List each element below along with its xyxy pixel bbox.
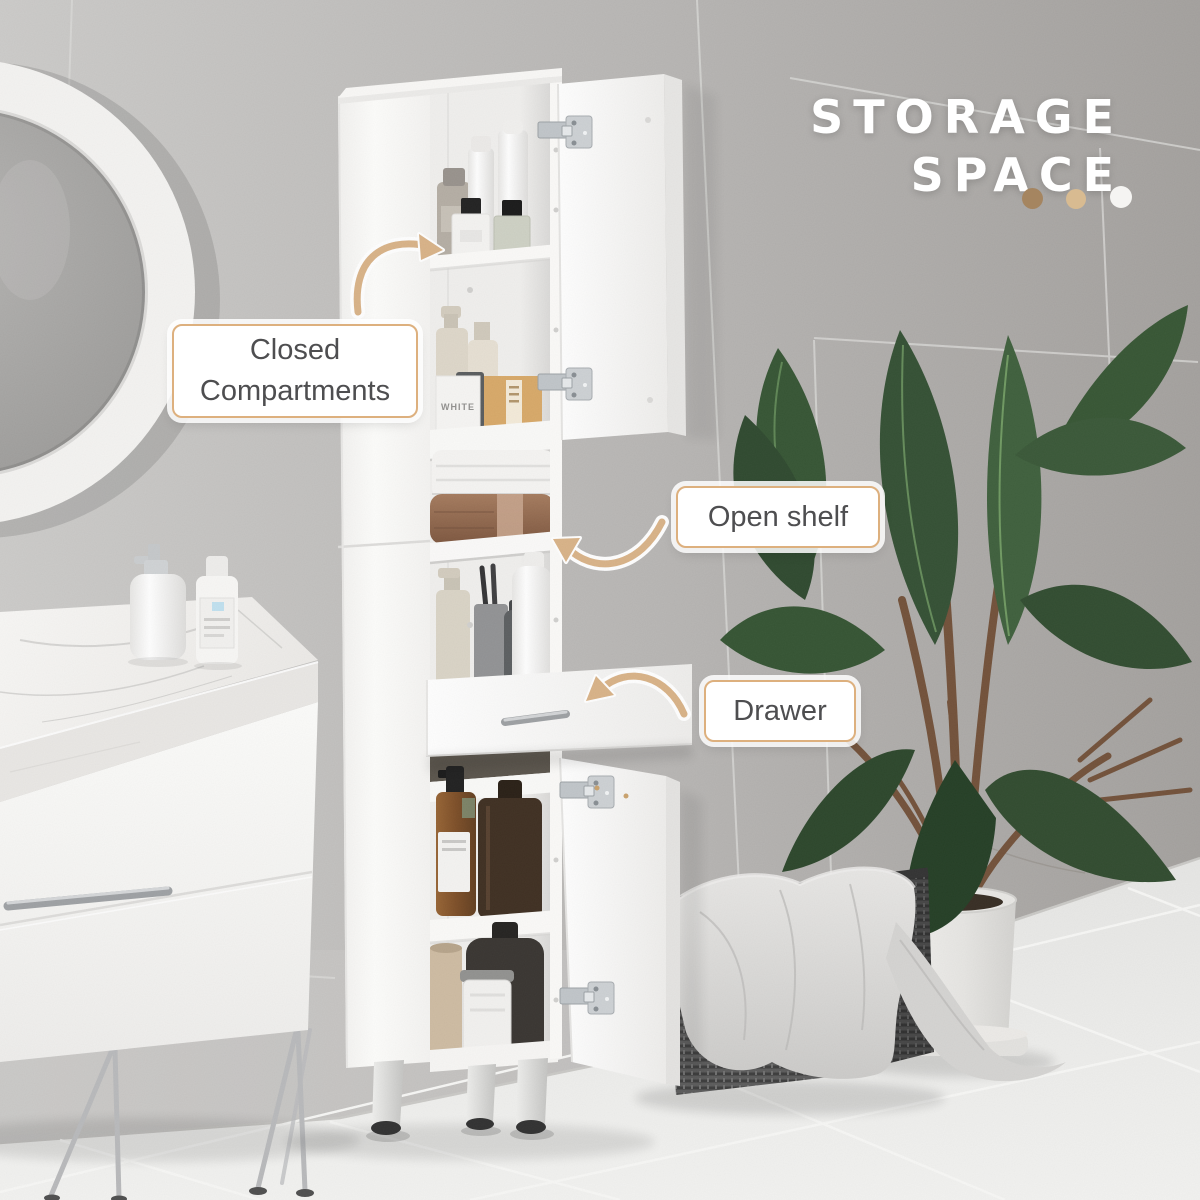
- callout-closed-compartments: Closed Compartments: [172, 324, 418, 418]
- headline-dot-brown: [1022, 188, 1043, 209]
- headline-dot-white: [1110, 186, 1132, 208]
- headline-storage-space: STORAGESPACE: [810, 88, 1124, 204]
- callout-drawer: Drawer: [704, 680, 856, 742]
- headline-line1: STORAGE: [810, 90, 1124, 144]
- product-marketing-image: WHITE: [0, 0, 1200, 1200]
- callout-open-shelf-label: Open shelf: [708, 497, 848, 538]
- callout-closed-line2: Compartments: [200, 371, 390, 412]
- callout-closed-line1: Closed: [250, 330, 340, 371]
- callout-drawer-label: Drawer: [733, 691, 826, 732]
- headline-dot-tan: [1066, 189, 1086, 209]
- callout-open-shelf: Open shelf: [676, 486, 880, 548]
